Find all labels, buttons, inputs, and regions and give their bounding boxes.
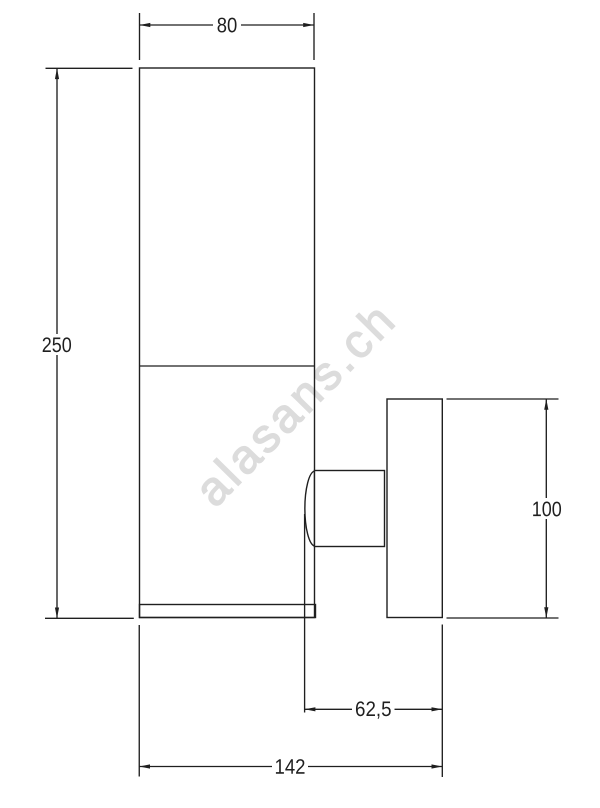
svg-text:80: 80 <box>217 14 238 37</box>
svg-text:100: 100 <box>532 498 562 521</box>
svg-text:250: 250 <box>42 334 72 357</box>
svg-text:142: 142 <box>274 756 305 779</box>
svg-text:62,5: 62,5 <box>355 698 392 721</box>
